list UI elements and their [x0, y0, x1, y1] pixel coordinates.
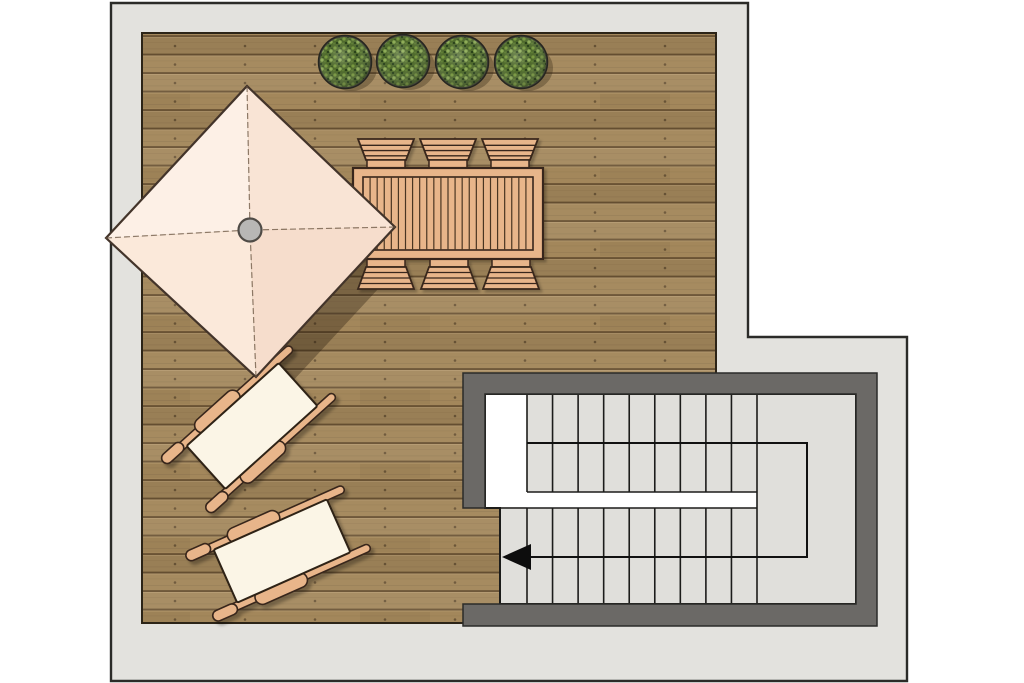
stair-landing-white	[486, 395, 527, 507]
chair-bottom-3	[483, 258, 539, 289]
flight-gap-white	[527, 492, 757, 508]
staircase	[463, 373, 877, 626]
chair-back	[482, 139, 538, 160]
shrub-shading	[320, 37, 370, 87]
floor-plan-page: Roof terrace floor plan	[0, 0, 1024, 683]
chair-back	[420, 139, 476, 160]
umbrella-pole	[239, 219, 262, 242]
chair-back	[358, 139, 414, 160]
chair-top-2	[420, 139, 476, 169]
floor-plan-canvas: Roof terrace floor plan	[0, 0, 1024, 683]
chair-top-3	[482, 139, 538, 169]
chair-bottom-1	[358, 258, 414, 289]
shrub-shading	[437, 37, 487, 87]
chair-top-1	[358, 139, 414, 169]
chair-bottom-2	[421, 258, 477, 289]
shrub-shading	[378, 36, 428, 86]
shrub-shading	[496, 37, 546, 87]
